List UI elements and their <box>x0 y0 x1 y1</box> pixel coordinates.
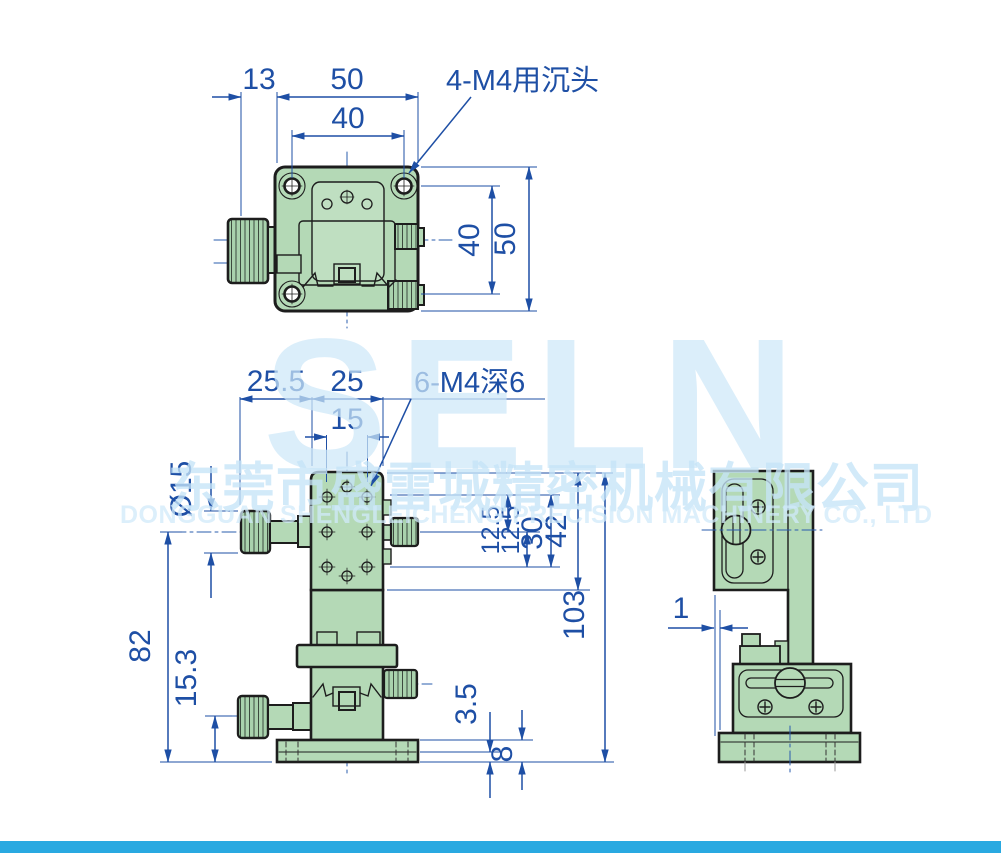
note-countersunk: 4-M4用沉头 <box>446 64 599 97</box>
dim-flange-height: 8 <box>486 746 519 763</box>
watermark: SELN 东莞市盛雷城精密机械有限公司 DONGGUAN SHENGLEICHE… <box>120 301 933 529</box>
top-knob-knurled <box>228 219 268 283</box>
dim-height-overall: 50 <box>489 222 522 255</box>
dim-width-overall: 50 <box>330 63 363 96</box>
dim-flange-step: 3.5 <box>450 683 483 725</box>
dim-knob-height: 15.3 <box>170 649 203 707</box>
dim-knob-offset: 13 <box>242 63 275 96</box>
technical-drawing: 13 50 40 4-M4用沉头 40 50 <box>0 0 1001 853</box>
front-clamp-block <box>297 645 397 667</box>
watermark-company-en: DONGGUAN SHENGLEICHENG PRECISION MACHINE… <box>120 501 933 529</box>
front-knob-lower-left <box>238 696 268 738</box>
top-wheel-upper <box>395 224 418 249</box>
footer-bar <box>0 841 1001 853</box>
top-side-tab <box>277 255 301 273</box>
dim-height-axis: 82 <box>124 629 157 662</box>
front-knob-lower-right <box>384 670 417 698</box>
dim-total-height: 103 <box>558 590 591 640</box>
dim-width-holes: 40 <box>331 102 364 135</box>
dim-plate-offset: 1 <box>673 592 690 625</box>
dim-height-holes: 40 <box>453 223 486 256</box>
technical-drawing-page: 13 50 40 4-M4用沉头 40 50 <box>0 0 1001 853</box>
